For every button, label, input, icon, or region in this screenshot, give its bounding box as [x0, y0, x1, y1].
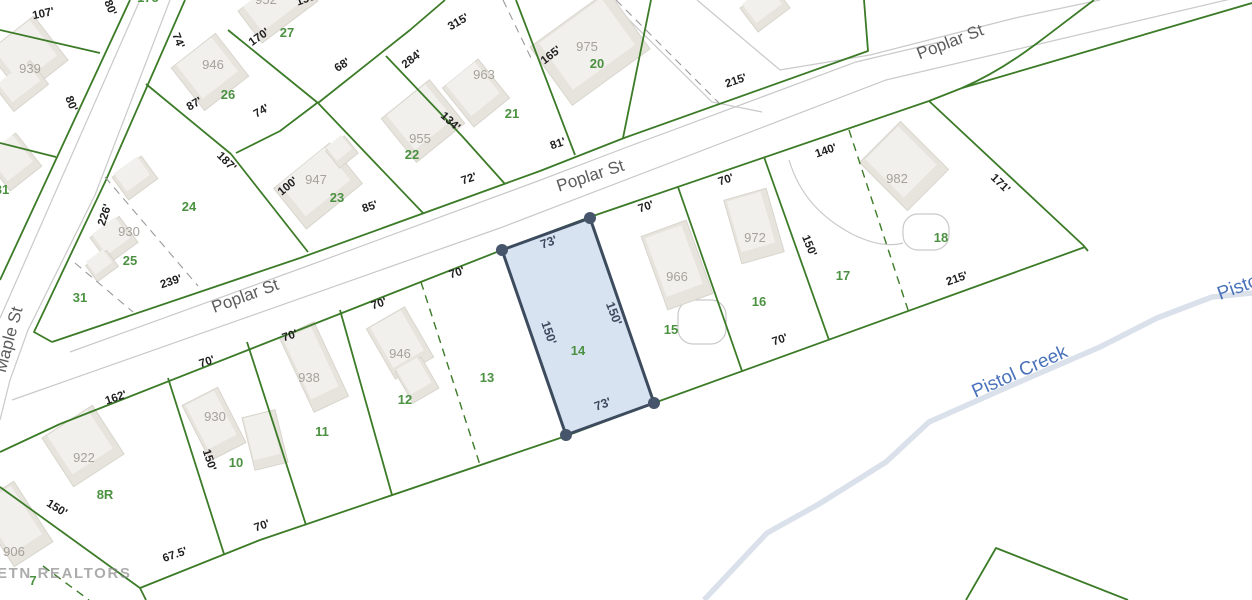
svg-text:21: 21	[505, 106, 519, 121]
svg-text:930: 930	[204, 409, 226, 424]
svg-text:14: 14	[571, 343, 586, 358]
svg-text:10: 10	[229, 455, 243, 470]
svg-text:930: 930	[118, 224, 140, 239]
svg-text:946: 946	[202, 57, 224, 72]
svg-text:966: 966	[666, 269, 688, 284]
svg-text:12: 12	[398, 392, 412, 407]
svg-text:26: 26	[221, 87, 235, 102]
svg-text:24: 24	[182, 199, 197, 214]
svg-text:11: 11	[315, 424, 329, 439]
svg-text:175: 175	[137, 0, 159, 5]
svg-text:955: 955	[409, 131, 431, 146]
svg-text:972: 972	[744, 230, 766, 245]
svg-text:946: 946	[389, 346, 411, 361]
svg-text:31: 31	[73, 290, 87, 305]
svg-text:20: 20	[590, 56, 604, 71]
svg-text:947: 947	[305, 172, 327, 187]
svg-text:13: 13	[480, 370, 494, 385]
svg-text:ETN REALTORS: ETN REALTORS	[0, 565, 131, 582]
svg-text:31: 31	[0, 182, 9, 197]
svg-text:906: 906	[3, 544, 25, 559]
svg-text:939: 939	[19, 61, 41, 76]
svg-text:952: 952	[255, 0, 277, 7]
svg-text:27: 27	[280, 25, 294, 40]
svg-text:16: 16	[752, 294, 766, 309]
svg-text:938: 938	[298, 370, 320, 385]
svg-text:22: 22	[405, 147, 419, 162]
svg-text:17: 17	[836, 268, 850, 283]
svg-text:23: 23	[330, 190, 344, 205]
svg-text:15: 15	[664, 322, 678, 337]
svg-text:8R: 8R	[97, 487, 114, 502]
svg-text:963: 963	[473, 67, 495, 82]
svg-text:25: 25	[123, 253, 137, 268]
svg-text:982: 982	[886, 171, 908, 186]
svg-text:922: 922	[73, 450, 95, 465]
svg-text:18: 18	[934, 230, 948, 245]
svg-text:975: 975	[576, 39, 598, 54]
